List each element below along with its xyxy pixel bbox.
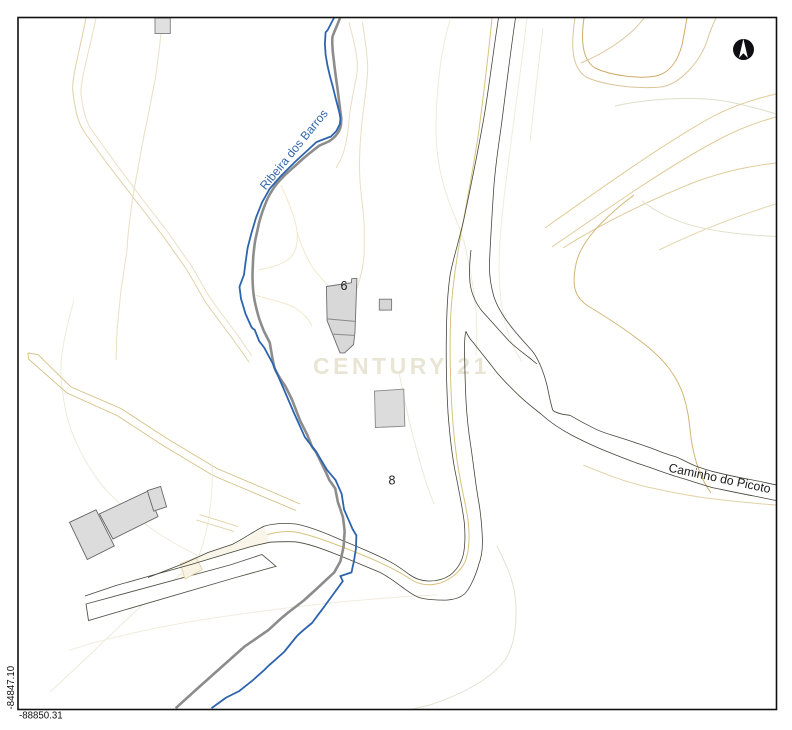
svg-text:6: 6 [341, 279, 348, 293]
svg-text:CENTURY 21: CENTURY 21 [313, 353, 490, 379]
svg-text:-88850.31: -88850.31 [19, 711, 63, 722]
svg-text:-84847.10: -84847.10 [6, 665, 17, 709]
svg-text:8: 8 [389, 474, 396, 488]
